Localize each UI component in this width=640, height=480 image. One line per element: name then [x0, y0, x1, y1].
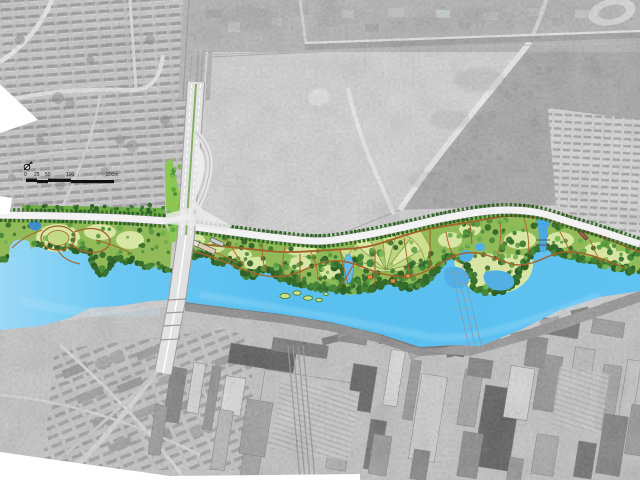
svg-text:0: 0: [24, 172, 27, 178]
svg-text:200m: 200m: [106, 172, 119, 178]
svg-text:25: 25: [34, 172, 40, 178]
svg-text:100: 100: [66, 172, 75, 178]
svg-text:50: 50: [45, 172, 51, 178]
